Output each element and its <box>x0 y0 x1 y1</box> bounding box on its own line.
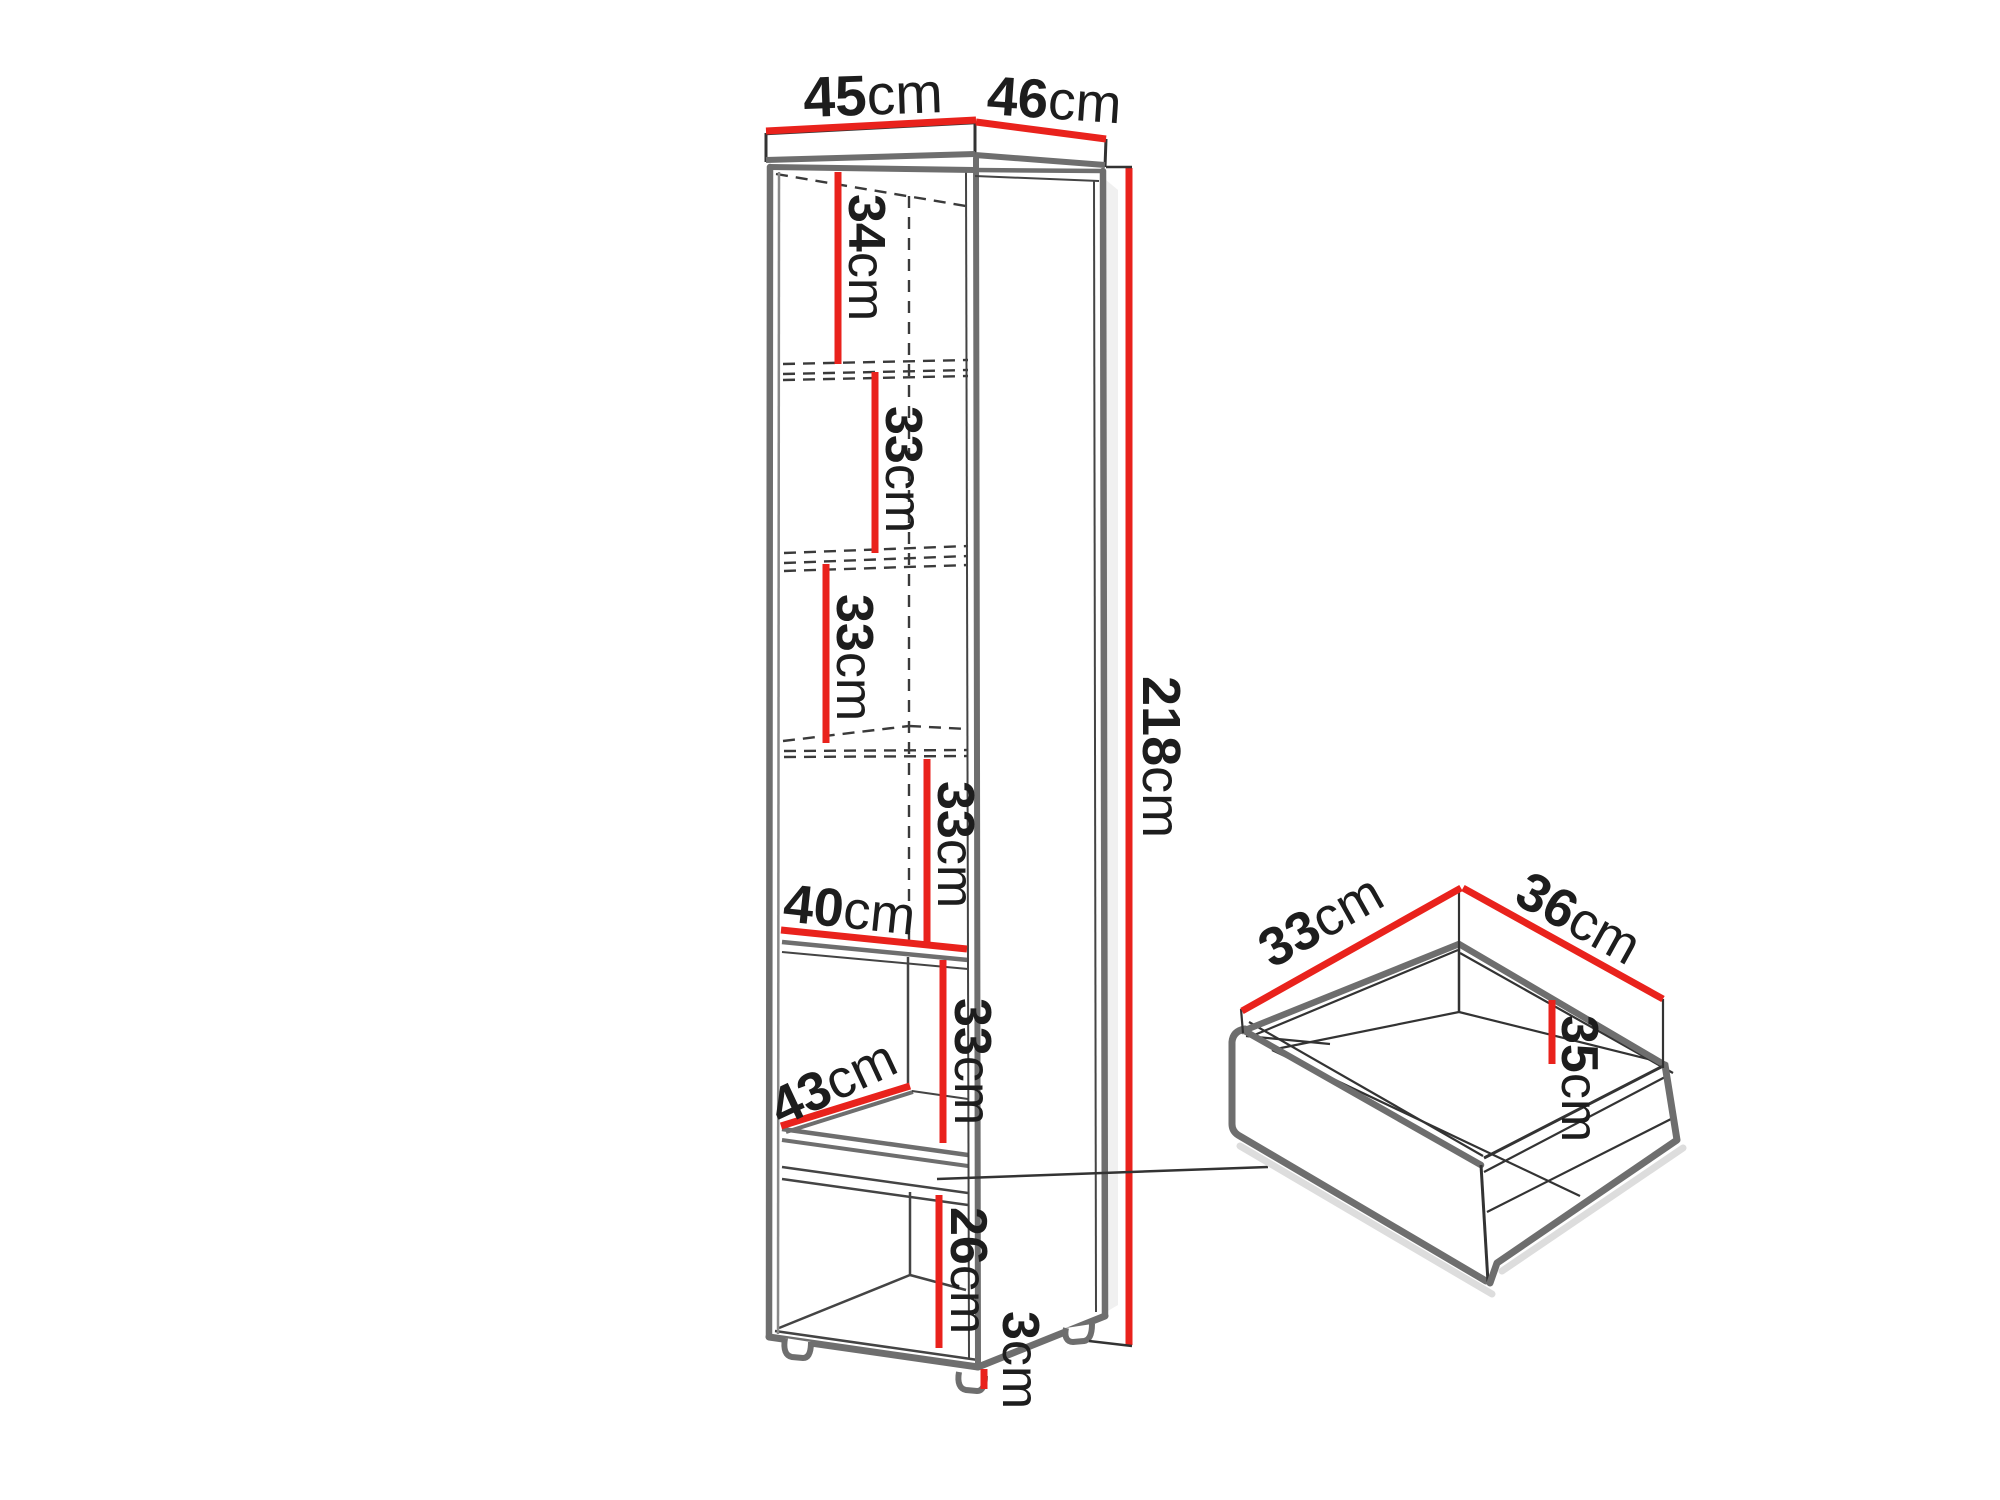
svg-text:33cm: 33cm <box>874 406 932 533</box>
svg-text:26cm: 26cm <box>939 1207 997 1334</box>
svg-text:35cm: 35cm <box>1550 1015 1608 1142</box>
svg-text:33cm: 33cm <box>825 594 883 721</box>
svg-text:33cm: 33cm <box>926 781 984 908</box>
svg-text:3cm: 3cm <box>991 1311 1049 1409</box>
svg-text:46cm: 46cm <box>985 64 1124 135</box>
svg-text:33cm: 33cm <box>943 998 1001 1125</box>
svg-text:45cm: 45cm <box>802 61 944 130</box>
svg-text:34cm: 34cm <box>837 194 895 321</box>
svg-text:218cm: 218cm <box>1131 676 1191 838</box>
